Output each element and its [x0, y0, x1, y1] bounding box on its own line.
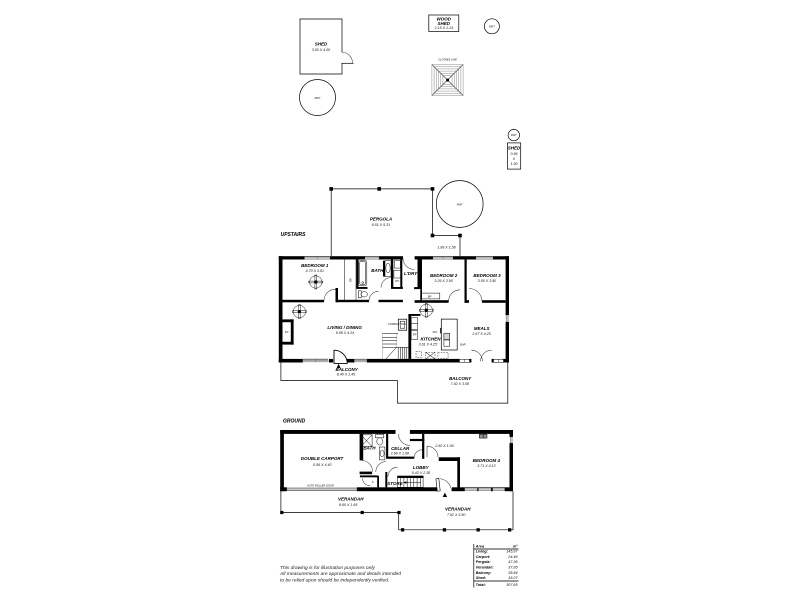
- svg-text:SHED: SHED: [315, 42, 328, 47]
- svg-text:KITCHEN: KITCHEN: [421, 336, 442, 341]
- svg-text:1.90: 1.90: [511, 162, 518, 166]
- svg-text:COMBUSTION: COMBUSTION: [388, 322, 406, 326]
- svg-text:Verandah:: Verandah:: [476, 566, 495, 570]
- svg-text:2.67 X 4.25: 2.67 X 4.25: [471, 332, 490, 336]
- svg-text:VERANDAH: VERANDAH: [445, 506, 471, 511]
- svg-text:DOUBLE CARPORT: DOUBLE CARPORT: [301, 456, 345, 461]
- svg-text:2.68 X 1.68: 2.68 X 1.68: [390, 452, 409, 456]
- svg-text:3.00 X 4.00: 3.00 X 4.00: [312, 48, 330, 52]
- svg-text:BEDROOM 1: BEDROOM 1: [301, 263, 329, 268]
- svg-text:BALCONY: BALCONY: [449, 376, 472, 381]
- svg-text:L'DRY: L'DRY: [404, 271, 418, 276]
- svg-text:X: X: [512, 157, 516, 161]
- svg-text:24.46: 24.46: [507, 555, 518, 559]
- svg-text:3.61 X 4.25: 3.61 X 4.25: [419, 343, 437, 347]
- svg-text:4.70 X 3.81: 4.70 X 3.81: [306, 269, 324, 273]
- svg-text:0.96: 0.96: [511, 152, 518, 156]
- svg-text:to be relied upon should be in: to be relied upon should be independentl…: [280, 577, 389, 583]
- svg-text:3.29 X 3.90: 3.29 X 3.90: [434, 279, 452, 283]
- svg-text:BEDROOM 3: BEDROOM 3: [473, 273, 501, 278]
- svg-text:RWT: RWT: [457, 202, 463, 206]
- svg-text:1.99 X 1.58: 1.99 X 1.58: [437, 246, 455, 250]
- svg-text:DW: DW: [433, 330, 438, 334]
- svg-text:7.92 X 3.08: 7.92 X 3.08: [451, 382, 469, 386]
- svg-text:KP: KP: [285, 330, 289, 334]
- svg-text:This drawing is for illustrati: This drawing is for illustration purpose…: [280, 565, 375, 571]
- svg-text:RWT: RWT: [489, 24, 495, 28]
- svg-text:FR: FR: [413, 332, 417, 336]
- svg-text:STORE: STORE: [387, 481, 403, 486]
- svg-text:CLOTHES LINE: CLOTHES LINE: [438, 58, 457, 62]
- svg-text:BATH: BATH: [363, 446, 376, 451]
- svg-text:8.40 X 1.45: 8.40 X 1.45: [337, 373, 355, 377]
- svg-text:BR: BR: [349, 278, 353, 282]
- svg-text:Shed:: Shed:: [476, 576, 487, 580]
- svg-text:307.65: 307.65: [506, 583, 518, 587]
- svg-text:RWT: RWT: [511, 133, 517, 137]
- svg-text:3.50 X 3.90: 3.50 X 3.90: [478, 279, 496, 283]
- svg-text:All measurements are approxima: All measurements are approximate and det…: [279, 571, 401, 577]
- svg-text:BEDROOM 2: BEDROOM 2: [430, 273, 458, 278]
- svg-text:145.97: 145.97: [506, 550, 518, 554]
- svg-text:AUTO ROLLER DOOR: AUTO ROLLER DOOR: [306, 484, 334, 488]
- svg-text:Area: Area: [475, 544, 484, 548]
- svg-text:RWT: RWT: [315, 96, 321, 100]
- svg-text:8.51 X 5.31: 8.51 X 5.31: [372, 223, 390, 227]
- svg-text:Pergola:: Pergola:: [476, 560, 492, 564]
- svg-text:9.58 X 4.24: 9.58 X 4.24: [336, 331, 354, 335]
- svg-text:WC: WC: [395, 279, 399, 283]
- svg-text:BALCONY: BALCONY: [335, 367, 358, 372]
- svg-text:16.07: 16.07: [508, 576, 518, 580]
- svg-text:BR: BR: [428, 295, 432, 299]
- svg-text:BATH: BATH: [371, 268, 384, 273]
- svg-text:Balcony:: Balcony:: [476, 571, 492, 575]
- svg-text:SHED: SHED: [438, 21, 451, 26]
- svg-text:BAR: BAR: [460, 342, 465, 346]
- svg-text:35.84: 35.84: [508, 571, 517, 575]
- svg-text:SHED: SHED: [508, 146, 521, 151]
- svg-text:LIVING / DINING: LIVING / DINING: [327, 325, 362, 330]
- svg-text:m²: m²: [513, 544, 518, 548]
- svg-text:8.60 X 1.65: 8.60 X 1.65: [339, 503, 357, 507]
- svg-text:3.71 X 4.12: 3.71 X 4.12: [477, 464, 495, 468]
- svg-text:CELLAR: CELLAR: [391, 446, 410, 451]
- svg-text:Carport:: Carport:: [476, 555, 491, 559]
- svg-text:MEALS: MEALS: [474, 326, 490, 331]
- svg-text:LOBBY: LOBBY: [413, 465, 430, 470]
- svg-text:2.60 X 1.06: 2.60 X 1.06: [434, 444, 453, 448]
- svg-text:UPSTAIRS: UPSTAIRS: [281, 232, 307, 238]
- svg-text:PERGOLA: PERGOLA: [370, 217, 392, 222]
- svg-text:BEDROOM 4: BEDROOM 4: [473, 458, 501, 463]
- svg-text:GROUND: GROUND: [283, 419, 306, 425]
- svg-text:Total:: Total:: [476, 583, 487, 587]
- svg-text:5.43 X 2.38: 5.43 X 2.38: [412, 471, 430, 475]
- svg-text:47.36: 47.36: [508, 560, 518, 564]
- svg-text:S: S: [372, 480, 374, 484]
- svg-text:5.56 X 4.40: 5.56 X 4.40: [313, 463, 331, 467]
- svg-text:2.15 X 1.14: 2.15 X 1.14: [434, 26, 453, 30]
- svg-text:37.95: 37.95: [508, 566, 518, 570]
- svg-text:Living:: Living:: [476, 550, 489, 554]
- svg-text:VERANDAH: VERANDAH: [338, 497, 364, 502]
- svg-text:7.92 X 3.90: 7.92 X 3.90: [447, 513, 465, 517]
